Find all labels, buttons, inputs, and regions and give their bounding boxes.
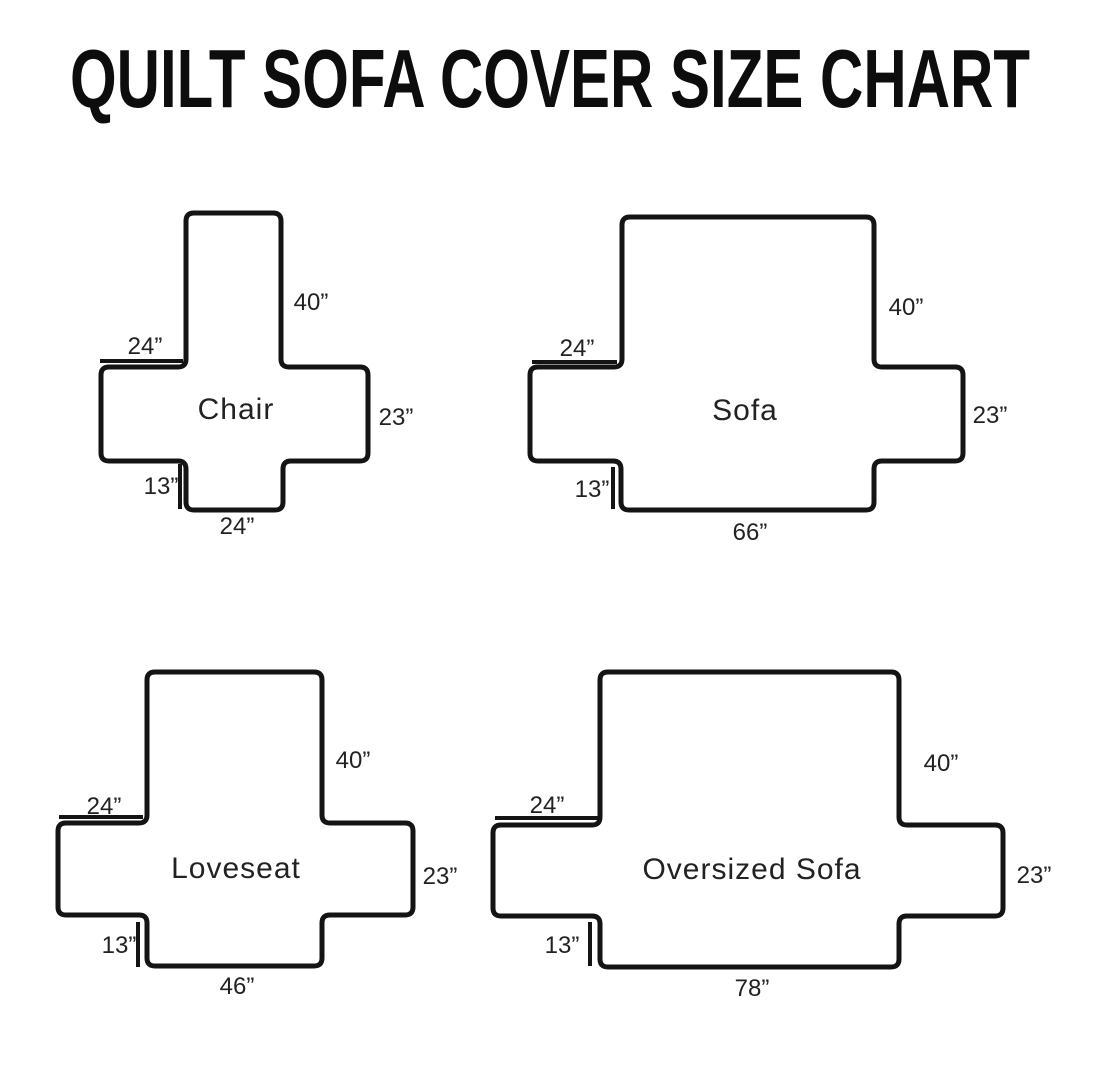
- size-chart-page: QUILT SOFA COVER SIZE CHART 40” 24” 23” …: [0, 0, 1100, 1092]
- loveseat-side-height-label: 23”: [423, 863, 458, 890]
- sofa-name-label: Sofa: [712, 394, 778, 427]
- size-chart-figure: QUILT SOFA COVER SIZE CHART 40” 24” 23” …: [0, 0, 1100, 1092]
- chair-back-height-label: 40”: [294, 289, 329, 316]
- loveseat-back-height-label: 40”: [336, 747, 371, 774]
- loveseat-front-height-label: 13”: [102, 932, 137, 959]
- page-title: QUILT SOFA COVER SIZE CHART: [70, 32, 1030, 125]
- loveseat-arm-length-label: 24”: [87, 793, 122, 820]
- oversized-sofa-side-height-label: 23”: [1017, 862, 1052, 889]
- sofa-side-height-label: 23”: [973, 402, 1008, 429]
- oversized-sofa-name-label: Oversized Sofa: [642, 853, 861, 886]
- loveseat-seat-width-label: 46”: [220, 973, 255, 1000]
- sofa-front-height-label: 13”: [575, 476, 610, 503]
- diagram-chair: 40” 24” 23” 13” 24” Chair: [100, 213, 413, 540]
- oversized-sofa-seat-width-label: 78”: [735, 975, 770, 1002]
- chair-arm-length-label: 24”: [128, 333, 163, 360]
- diagram-loveseat: 40” 24” 23” 13” 46” Loveseat: [58, 672, 457, 1000]
- oversized-sofa-arm-length-label: 24”: [530, 792, 565, 819]
- loveseat-name-label: Loveseat: [171, 852, 301, 885]
- chair-front-height-label: 13”: [144, 473, 179, 500]
- chair-side-height-label: 23”: [379, 404, 414, 431]
- oversized-sofa-back-height-label: 40”: [924, 750, 959, 777]
- oversized-sofa-front-height-label: 13”: [545, 932, 580, 959]
- diagram-sofa: 40” 24” 23” 13” 66” Sofa: [530, 217, 1007, 546]
- diagram-oversized-sofa: 40” 24” 23” 13” 78” Oversized Sofa: [493, 672, 1051, 1002]
- sofa-arm-length-label: 24”: [560, 335, 595, 362]
- sofa-back-height-label: 40”: [889, 294, 924, 321]
- sofa-seat-width-label: 66”: [733, 519, 768, 546]
- chair-name-label: Chair: [198, 393, 275, 426]
- chair-seat-width-label: 24”: [220, 513, 255, 540]
